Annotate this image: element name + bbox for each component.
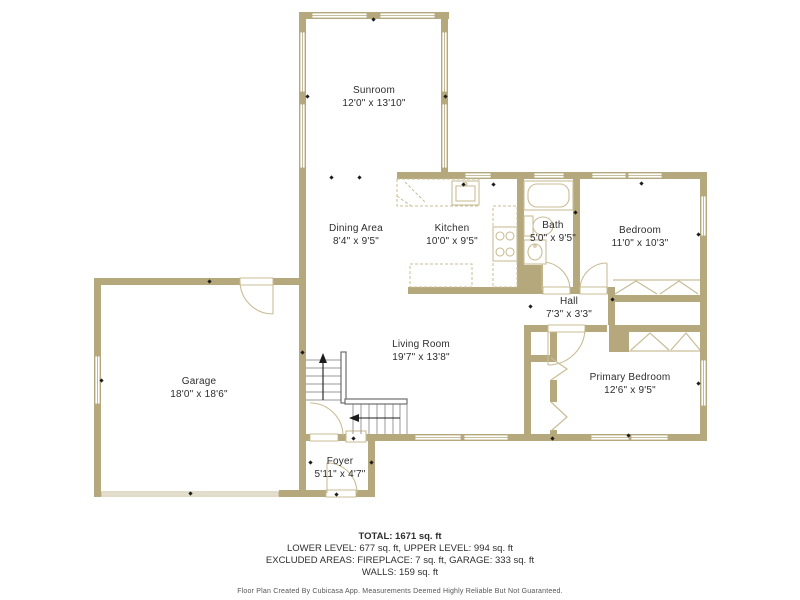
closet-chevron	[671, 333, 700, 350]
room-name: Primary Bedroom	[590, 371, 671, 384]
bathtub	[524, 181, 573, 210]
window	[312, 13, 367, 18]
fireplace	[346, 431, 366, 442]
room-dims: 12'0" x 13'10"	[342, 97, 405, 110]
stairs-left-arrow	[349, 414, 400, 422]
total-area-text: TOTAL: 1671 sq. ft	[0, 531, 800, 543]
floor-plan-page: Sunroom 12'0" x 13'10" Dining Area 8'4" …	[0, 0, 800, 600]
door-leaf	[580, 287, 607, 294]
disclaimer-text: Floor Plan Created By Cubicasa App. Meas…	[0, 588, 800, 595]
door-leaf	[240, 278, 273, 285]
room-dims: 5'11" x 4'7"	[315, 468, 366, 481]
room-label-hall: Hall 7'3" x 3'3"	[546, 295, 592, 321]
room-dims: 11'0" x 10'3"	[612, 237, 669, 250]
window	[465, 173, 491, 178]
window	[534, 173, 564, 178]
room-dims: 18'0" x 18'6"	[170, 388, 227, 401]
window	[701, 196, 706, 236]
window	[464, 435, 508, 440]
room-name: Foyer	[315, 455, 366, 468]
room-dims: 5'0" x 9'5"	[530, 232, 576, 245]
closet-chevron	[615, 281, 657, 294]
window	[631, 435, 668, 440]
room-label-bedroom: Bedroom 11'0" x 10'3"	[612, 224, 669, 250]
window	[300, 104, 305, 168]
window	[300, 32, 305, 92]
window	[628, 173, 662, 178]
window	[442, 104, 447, 168]
room-label-sunroom: Sunroom 12'0" x 13'10"	[342, 84, 405, 110]
window	[591, 435, 629, 440]
floor-plan-drawing	[0, 0, 800, 525]
room-dims: 19'7" x 13'8"	[392, 351, 450, 364]
window	[592, 173, 626, 178]
window	[95, 356, 100, 404]
room-dims: 10'0" x 9'5"	[426, 235, 478, 248]
room-label-foyer: Foyer 5'11" x 4'7"	[315, 455, 366, 481]
room-label-primary-bedroom: Primary Bedroom 12'6" x 9'5"	[590, 371, 671, 397]
door-arc	[542, 262, 570, 290]
room-dims: 7'3" x 3'3"	[546, 308, 592, 321]
door-leaf	[543, 287, 570, 294]
closet-chevron	[551, 402, 567, 431]
window	[380, 13, 435, 18]
door-arc	[310, 403, 343, 436]
window	[701, 360, 706, 406]
room-name: Garage	[170, 375, 227, 388]
room-name: Dining Area	[329, 222, 383, 235]
room-name: Bedroom	[612, 224, 669, 237]
room-label-garage: Garage 18'0" x 18'6"	[170, 375, 227, 401]
door-leaf	[310, 434, 338, 441]
excluded-area-text: EXCLUDED AREAS: FIREPLACE: 7 sq. ft, GAR…	[0, 555, 800, 567]
area-summary: TOTAL: 1671 sq. ft LOWER LEVEL: 677 sq. …	[0, 531, 800, 595]
room-label-dining-area: Dining Area 8'4" x 9'5"	[329, 222, 383, 248]
room-name: Bath	[530, 219, 576, 232]
room-label-kitchen: Kitchen 10'0" x 9'5"	[426, 222, 478, 248]
door-leaf	[548, 325, 585, 332]
door-arc	[580, 263, 607, 290]
door-arc	[240, 281, 273, 314]
door-leaf	[326, 490, 356, 497]
kitchen-island	[410, 264, 472, 287]
room-name: Kitchen	[426, 222, 478, 235]
window	[442, 32, 447, 92]
closet-chevron	[631, 333, 669, 350]
room-dims: 12'6" x 9'5"	[590, 384, 671, 397]
room-label-bath: Bath 5'0" x 9'5"	[530, 219, 576, 245]
stove	[493, 227, 517, 261]
room-label-living-room: Living Room 19'7" x 13'8"	[392, 338, 450, 364]
room-dims: 8'4" x 9'5"	[329, 235, 383, 248]
levels-area-text: LOWER LEVEL: 677 sq. ft, UPPER LEVEL: 99…	[0, 543, 800, 555]
room-name: Sunroom	[342, 84, 405, 97]
walls-area-text: WALLS: 159 sq. ft	[0, 567, 800, 579]
closet-chevron	[660, 281, 698, 294]
window	[415, 435, 461, 440]
room-name: Living Room	[392, 338, 450, 351]
staircase	[306, 352, 407, 434]
room-name: Hall	[546, 295, 592, 308]
